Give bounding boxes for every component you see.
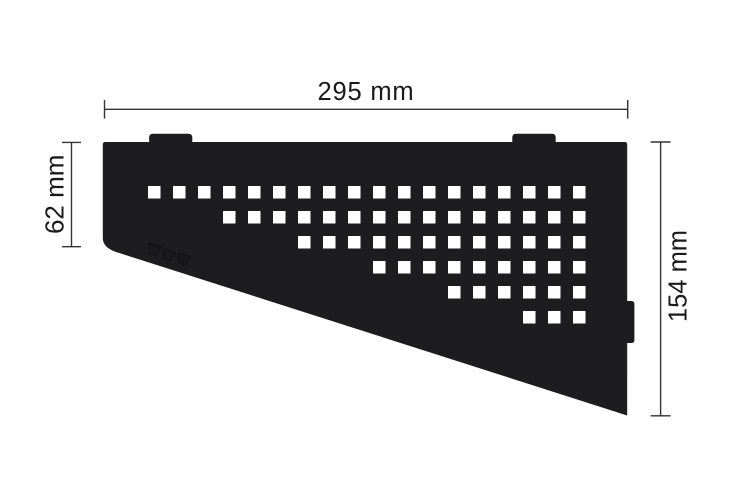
svg-text:62 mm: 62 mm [40, 155, 70, 234]
svg-text:295 mm: 295 mm [318, 78, 415, 106]
svg-text:154 mm: 154 mm [665, 230, 693, 322]
